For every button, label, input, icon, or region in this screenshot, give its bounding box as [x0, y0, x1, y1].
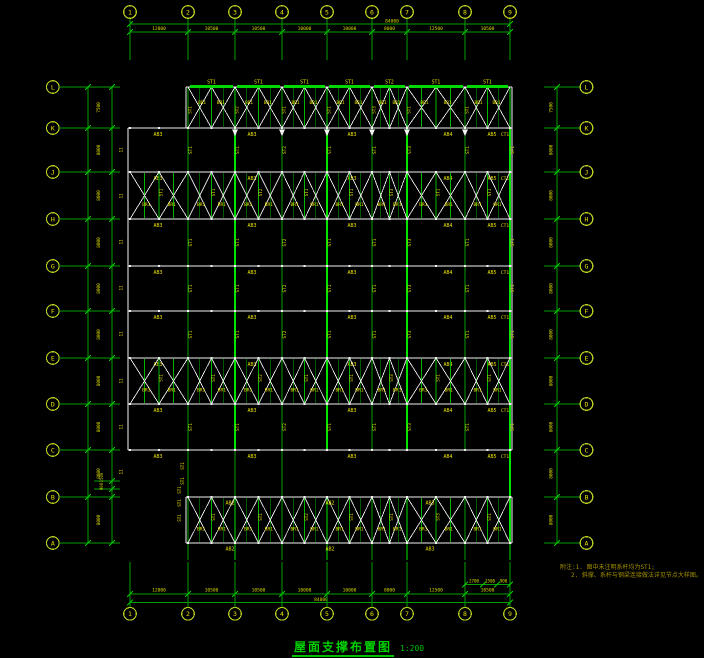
node-square [257, 542, 259, 544]
dim-text: 7500 [549, 102, 555, 113]
joint-mark: 11 [119, 424, 124, 430]
node-square [371, 265, 373, 267]
tie-label: ST1 [349, 513, 354, 521]
tie-label: ST1 [211, 513, 216, 521]
brace-label: BR1 [419, 202, 428, 208]
node-square [210, 449, 212, 451]
joint-mark: 11 [119, 378, 124, 384]
node-square [406, 449, 408, 451]
node-square [464, 265, 466, 267]
brace-label: BR1 [378, 388, 387, 394]
tie-label: ST1 [487, 513, 492, 521]
tie-label: ST3 [407, 146, 413, 154]
node-square [371, 449, 373, 451]
dim-text: 10000 [298, 26, 312, 32]
tie-label: ST2 [258, 374, 263, 382]
node-square [464, 542, 466, 544]
purlin-label: ST1 [483, 80, 492, 86]
tie-label: ST1 [235, 146, 241, 154]
dim-text: 12000 [152, 588, 166, 594]
tie-label: ST1 [465, 238, 471, 246]
node-square [158, 127, 160, 129]
member-label: AB3 [153, 223, 162, 229]
dim-text: 8000 [96, 144, 102, 155]
dim-text: 8000 [549, 237, 555, 248]
node-square [234, 496, 236, 498]
member-label: AB4 [443, 223, 452, 229]
node-square [464, 496, 466, 498]
dim-text: 8000 [549, 421, 555, 432]
node-square [129, 449, 131, 451]
brace-label: BR1 [393, 527, 402, 533]
tie-label: ST2 [304, 513, 309, 521]
node-square [435, 310, 437, 312]
node-square [388, 310, 390, 312]
node-square [371, 310, 373, 312]
tie-label: ST1 [188, 238, 194, 246]
member-label: AB4 [443, 315, 452, 321]
member-label: CT1 [501, 408, 510, 414]
grid-bubble-label: J [51, 168, 55, 176]
purlin-label: ST1 [300, 80, 309, 86]
dim-text: 10000 [343, 26, 357, 32]
grid-bubble-label: 6 [370, 610, 374, 618]
node-square [234, 449, 236, 451]
node-square [129, 265, 131, 267]
tie-label: ST2 [282, 330, 288, 338]
brace-label: BR1 [473, 388, 482, 394]
node-square [281, 449, 283, 451]
member-label: AB5 [487, 454, 496, 460]
node-square [158, 449, 160, 451]
member-label: CT1 [501, 223, 510, 229]
tie-label: ST1 [510, 423, 516, 431]
member-label: AB2 [325, 547, 334, 553]
grid-bubble-label: D [585, 400, 589, 408]
brace-label: BR1 [310, 202, 319, 208]
tie-label: ST1 [327, 146, 333, 154]
node-square [303, 310, 305, 312]
node-square [348, 496, 350, 498]
member-label: AB3 [247, 270, 256, 276]
connection-arrow [369, 130, 375, 137]
joint-mark: 11 [119, 469, 124, 475]
node-square [435, 496, 437, 498]
tie-label: ST3 [407, 423, 413, 431]
joint-mark: 11 [119, 331, 124, 337]
purlin-label: ST1 [345, 80, 354, 86]
node-square [486, 265, 488, 267]
grid-bubble-label: 5 [325, 610, 329, 618]
dim-text: 12500 [429, 588, 443, 594]
node-square [486, 449, 488, 451]
brace-label: BR1 [218, 527, 227, 533]
node-square [234, 542, 236, 544]
tie-label: ST3 [389, 188, 394, 196]
dim-text-overall: 84000 [314, 597, 328, 603]
dim-text-sub: 2700 [469, 578, 480, 583]
tie-label: ST1 [510, 330, 516, 338]
brace-label: BR1 [337, 100, 345, 106]
dim-text-sub: 900 [99, 482, 104, 490]
node-square [509, 265, 511, 267]
brace-label: BR1 [419, 527, 428, 533]
grid-bubble-label: F [51, 307, 55, 315]
tie-label: ST1 [406, 106, 411, 114]
brace-label: BR1 [378, 527, 387, 533]
brace-label: BR1 [420, 100, 428, 106]
brace-label: BR1 [473, 202, 482, 208]
node-square [435, 542, 437, 544]
member-label: AB3 [153, 315, 162, 321]
brace-label: BR1 [355, 527, 364, 533]
brace-label: BR1 [393, 202, 402, 208]
node-square [281, 496, 283, 498]
grid-bubble-label: 2 [186, 610, 190, 618]
brace-label: BR1 [473, 527, 482, 533]
brace-label: BR1 [265, 202, 274, 208]
member-label: AB3 [425, 547, 434, 553]
node-square [388, 542, 390, 544]
brace-label: BR1 [197, 388, 206, 394]
brace-label: BR1 [244, 527, 253, 533]
tie-label: ST2 [282, 423, 288, 431]
tie-label: ST1 [211, 374, 216, 382]
grid-bubble-label: K [585, 124, 589, 132]
member-label: AB4 [443, 270, 452, 276]
node-square [406, 265, 408, 267]
brace-label: BR1 [198, 100, 206, 106]
notes: 附注:1. 图中未注明系杆均为ST1; 2. 斜撑、系杆与钢梁连接做法详见节点大… [560, 564, 704, 579]
grid-bubble-label: E [51, 354, 55, 362]
dim-text: 10500 [252, 588, 266, 594]
tie-label: ST1 [235, 423, 241, 431]
purlin-label: ST1 [432, 80, 441, 86]
node-square [464, 449, 466, 451]
grid-bubble-label: B [51, 493, 55, 501]
grid-bubble-label: 7 [405, 8, 409, 16]
tie-label: ST2 [282, 238, 288, 246]
tie-label: ST1 [372, 284, 378, 292]
member-label: AB4 [443, 132, 452, 138]
node-square [509, 542, 511, 544]
brace-label: BR1 [310, 527, 319, 533]
member-label: AB5 [487, 132, 496, 138]
tie-label: ST1 [465, 146, 471, 154]
member-label: AB2 [225, 547, 234, 553]
tie-label: ST2 [258, 188, 263, 196]
dim-text-overall: 84000 [385, 18, 399, 24]
member-label: CT1 [501, 454, 510, 460]
dim-text-sub: 1500 [99, 472, 104, 482]
grid-bubble-label: 4 [280, 610, 284, 618]
node-square [435, 449, 437, 451]
grid-bubble-label: 6 [370, 8, 374, 16]
node-square [281, 542, 283, 544]
grid-bubble-label: 7 [405, 610, 409, 618]
drawing-title: 屋面支撑布置图 [292, 640, 394, 657]
tie-label: ST1 [510, 146, 516, 154]
dim-text: 10000 [343, 588, 357, 594]
brace-label: BR1 [244, 388, 253, 394]
cad-drawing-area: 1200010500105001000010000800012500105008… [0, 0, 704, 658]
node-square [509, 449, 511, 451]
node-square [303, 265, 305, 267]
brace-label: BR1 [218, 388, 227, 394]
node-square [348, 542, 350, 544]
grid-bubble-label: H [585, 215, 589, 223]
connection-arrow [404, 130, 410, 137]
node-square [326, 449, 328, 451]
purlin-label: ST2 [385, 80, 394, 86]
member-label: AB5 [487, 408, 496, 414]
node-square [303, 542, 305, 544]
grid-bubble-label: 5 [325, 8, 329, 16]
brace-label: BR1 [335, 527, 344, 533]
dim-text: 8000 [549, 190, 555, 201]
tie-label: ST1 [188, 284, 194, 292]
dim-text: 8000 [549, 329, 555, 340]
grid-bubble-label: 3 [233, 610, 237, 618]
dim-text: 8000 [549, 375, 555, 386]
tie-label: ST1 [510, 238, 516, 246]
node-square [348, 310, 350, 312]
tie-label: ST1 [180, 462, 185, 470]
node-square [257, 496, 259, 498]
member-label: AB3 [153, 408, 162, 414]
tie-label: ST1 [158, 188, 163, 196]
joint-mark: 11 [119, 193, 124, 199]
tie-label: ST1 [188, 146, 194, 154]
node-square [388, 265, 390, 267]
tie-label: ST1 [235, 330, 241, 338]
node-square [257, 449, 259, 451]
dim-text: 8000 [96, 421, 102, 432]
grid-bubble-label: E [585, 354, 589, 362]
brace-label: BR1 [310, 100, 318, 106]
dim-text: 12000 [152, 26, 166, 32]
tie-label: ST1 [372, 330, 378, 338]
connection-arrow [279, 130, 285, 137]
brace-label: BR1 [245, 100, 253, 106]
node-square [486, 310, 488, 312]
node-square [348, 265, 350, 267]
brace-label: BR1 [197, 202, 206, 208]
node-square [388, 449, 390, 451]
brace-label: BR1 [445, 388, 454, 394]
tie-label: ST1 [177, 514, 182, 522]
drawing-scale: 1:200 [400, 644, 424, 653]
tie-label: ST1 [435, 188, 440, 196]
brace-label: BR1 [493, 388, 502, 394]
grid-bubble-label: F [585, 307, 589, 315]
dim-text: 8000 [384, 26, 395, 32]
tie-label: ST1 [487, 374, 492, 382]
member-label: AB5 [487, 315, 496, 321]
node-square [509, 310, 511, 312]
node-square [234, 310, 236, 312]
member-label: AB4 [443, 454, 452, 460]
member-label: AB3 [247, 315, 256, 321]
member-label: AB3 [347, 408, 356, 414]
member-label: CT1 [501, 132, 510, 138]
node-square [326, 496, 328, 498]
node-square [509, 496, 511, 498]
purlin-bar [329, 85, 370, 88]
node-square [303, 449, 305, 451]
brace-label: BR1 [265, 527, 274, 533]
tie-label: ST3 [389, 374, 394, 382]
tie-label: ST1 [464, 106, 469, 114]
member-label: AB3 [247, 132, 256, 138]
grid-bubble-label: 1 [128, 610, 132, 618]
purlin-bar [374, 85, 405, 88]
tie-label: ST1 [281, 106, 286, 114]
joint-mark: 11 [119, 239, 124, 245]
dim-text: 10500 [481, 26, 495, 32]
node-square [158, 265, 160, 267]
member-label: AB3 [347, 223, 356, 229]
tie-label: ST1 [304, 374, 309, 382]
tie-label: ST1 [177, 486, 182, 494]
grid-bubble-label: 9 [508, 610, 512, 618]
purlin-bar [284, 85, 325, 88]
tie-label: ST1 [327, 238, 333, 246]
connection-arrow [232, 130, 238, 137]
member-label: AB3 [347, 132, 356, 138]
dim-text: 8000 [96, 237, 102, 248]
dim-text: 8000 [549, 468, 555, 479]
brace-label: BR1 [378, 202, 387, 208]
member-label: AB3 [347, 315, 356, 321]
dim-text: 10000 [298, 588, 312, 594]
brace-label: BR1 [292, 100, 300, 106]
brace-label: BR1 [290, 527, 299, 533]
member-label: CT1 [501, 315, 510, 321]
brace-label: BR1 [445, 527, 454, 533]
tie-label: ST1 [258, 513, 263, 521]
member-label: CT1 [501, 270, 510, 276]
tie-label: ST1 [187, 106, 192, 114]
brace-label: BR1 [142, 388, 151, 394]
purlin-label: ST1 [207, 80, 216, 86]
member-label: AB3 [153, 270, 162, 276]
member-label: AB3 [247, 454, 256, 460]
member-label: AB2 [225, 501, 234, 507]
node-square [406, 310, 408, 312]
brace-label: BR1 [335, 202, 344, 208]
drawing-canvas: 1200010500105001000010000800012500105008… [0, 0, 704, 658]
brace-label: BR1 [142, 202, 151, 208]
member-label: AB3 [347, 270, 356, 276]
node-square [257, 310, 259, 312]
node-square [187, 265, 189, 267]
node-square [234, 265, 236, 267]
node-square [187, 310, 189, 312]
tie-label: ST1 [327, 330, 333, 338]
tie-label: ST3 [407, 238, 413, 246]
node-square [158, 310, 160, 312]
member-label: AB2 [325, 501, 334, 507]
brace-label: BR1 [493, 202, 502, 208]
brace-label: BR1 [217, 100, 225, 106]
node-square [348, 449, 350, 451]
grid-bubble-label: 2 [186, 8, 190, 16]
brace-label: BR1 [355, 100, 363, 106]
brace-label: BR1 [493, 100, 501, 106]
tie-label: ST1 [465, 284, 471, 292]
grid-bubble-label: 1 [128, 8, 132, 16]
node-square [129, 127, 131, 129]
tie-label: ST1 [349, 374, 354, 382]
member-label: AB4 [443, 408, 452, 414]
brace-label: BR1 [355, 202, 364, 208]
node-square [486, 542, 488, 544]
node-square [187, 496, 189, 498]
purlin-bar [467, 85, 508, 88]
dim-text: 8000 [96, 190, 102, 201]
grid-bubble-label: 8 [463, 610, 467, 618]
tie-label: ST1 [349, 188, 354, 196]
brace-label: BR1 [168, 388, 177, 394]
tie-label: ST1 [372, 146, 378, 154]
brace-label: BR1 [445, 202, 454, 208]
purlin-bar [237, 85, 280, 88]
tie-label: ST1 [327, 284, 333, 292]
joint-mark: 11 [119, 147, 124, 153]
tie-label: ST1 [158, 374, 163, 382]
node-square [281, 265, 283, 267]
grid-bubble-label: C [585, 446, 589, 454]
node-square [210, 496, 212, 498]
node-square [406, 496, 408, 498]
node-square [129, 310, 131, 312]
brace-label: BR1 [493, 527, 502, 533]
node-square [388, 496, 390, 498]
brace-label: BR1 [355, 388, 364, 394]
grid-bubble-label: 8 [463, 8, 467, 16]
grid-bubble-label: L [51, 83, 55, 91]
dim-text: 8000 [549, 283, 555, 294]
dim-text: 8000 [96, 329, 102, 340]
node-square [257, 265, 259, 267]
grid-bubble-label: G [585, 262, 589, 270]
tie-label: ST2 [282, 146, 288, 154]
dim-text: 8000 [549, 144, 555, 155]
tie-label: ST3 [407, 284, 413, 292]
brace-label: BR1 [264, 100, 272, 106]
member-label: AB4 [443, 362, 452, 368]
tie-label: ST1 [304, 188, 309, 196]
member-label: AB3 [153, 132, 162, 138]
tie-label: ST1 [372, 423, 378, 431]
node-square [281, 310, 283, 312]
grid-bubble-label: D [51, 400, 55, 408]
tie-label: ST1 [372, 238, 378, 246]
brace-label: BR1 [393, 100, 401, 106]
dim-text: 8000 [549, 514, 555, 525]
node-square [326, 542, 328, 544]
member-label: AB5 [487, 270, 496, 276]
grid-bubble-label: 9 [508, 8, 512, 16]
brace-label: BR1 [244, 202, 253, 208]
node-square [371, 496, 373, 498]
grid-bubble-label: A [51, 539, 55, 547]
purlin-bar [409, 85, 463, 88]
node-square [210, 542, 212, 544]
dim-text: 7500 [96, 102, 102, 113]
dim-text: 10500 [205, 588, 219, 594]
